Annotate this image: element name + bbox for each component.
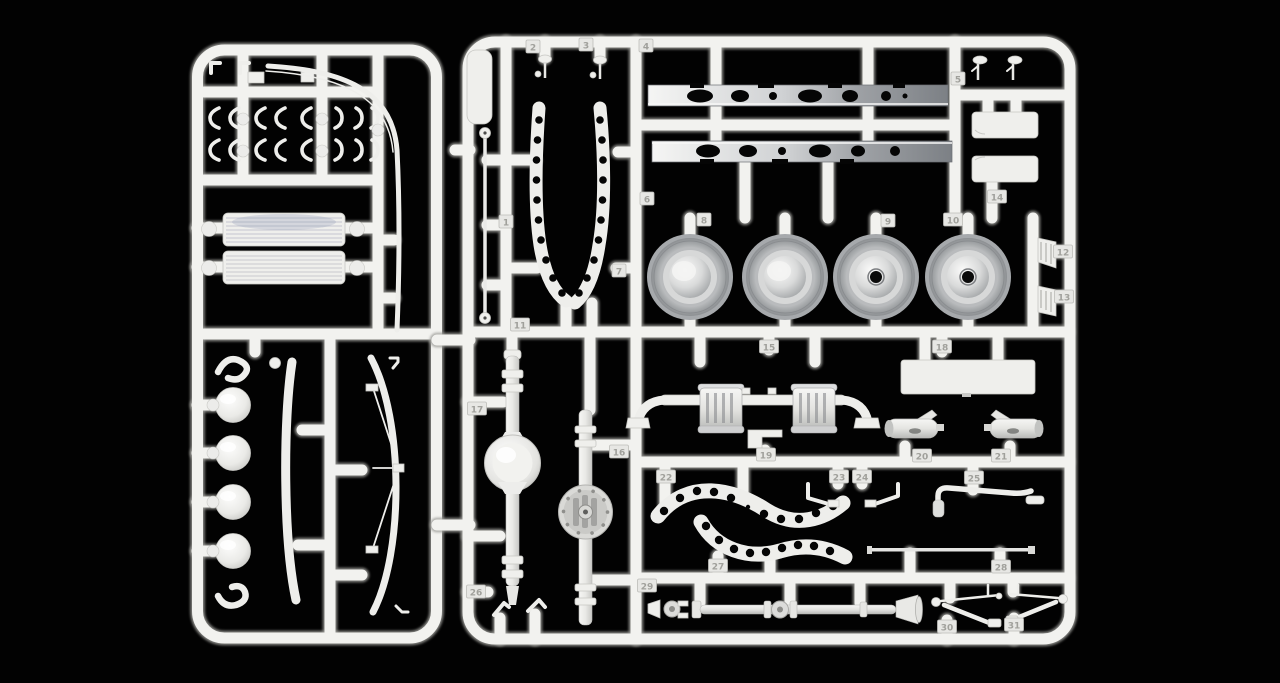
svg-text:21: 21 (995, 453, 1008, 463)
muffler-1 (885, 410, 945, 438)
wheel-dish-4 (925, 234, 1011, 320)
svg-text:30: 30 (941, 624, 954, 634)
small-dot-part (270, 358, 281, 369)
part-number-tag: 2 (526, 40, 540, 54)
brake-drum (698, 384, 744, 433)
part-number-tag: 26 (467, 585, 486, 599)
part-number-tag: 8 (697, 213, 711, 227)
part-number-tag: 18 (933, 340, 952, 354)
top-hook-parts (211, 63, 314, 83)
part-number-tag: 22 (657, 470, 676, 484)
part-number-tag: 15 (760, 340, 779, 354)
frame-rail-1 (648, 83, 948, 106)
svg-text:7: 7 (616, 268, 622, 278)
svg-text:5: 5 (955, 76, 961, 86)
wheel-dish-3 (833, 234, 919, 320)
tie-rod (867, 546, 1035, 554)
wheel-dish-2 (742, 234, 828, 320)
svg-text:26: 26 (470, 589, 483, 599)
right-sprue (437, 42, 1070, 639)
svg-text:3: 3 (583, 42, 589, 52)
svg-text:11: 11 (514, 322, 527, 332)
part-number-tag: 23 (830, 470, 849, 484)
toolbox-lids (972, 112, 1038, 182)
canvas-bow-braced (366, 358, 408, 612)
part-number-tag: 29 (638, 579, 657, 593)
wheel-dish-1 (647, 234, 733, 320)
part-number-tag: 1 (499, 215, 513, 229)
part-number-tag: 21 (992, 449, 1011, 463)
mirror-parts-right (972, 56, 1022, 80)
svg-text:9: 9 (885, 218, 891, 228)
part-number-tag: 4 (639, 39, 653, 53)
brake-drum (791, 384, 837, 433)
svg-text:20: 20 (916, 453, 929, 463)
svg-text:6: 6 (644, 196, 650, 206)
mudguard-strip-2 (701, 522, 845, 557)
part-number-tag: 27 (709, 559, 728, 573)
svg-text:22: 22 (660, 474, 673, 484)
mirror-parts (535, 55, 607, 79)
part-number-tag: 13 (1055, 290, 1074, 304)
left-sprue (197, 50, 437, 638)
part-number-tag: 6 (640, 192, 654, 206)
mudguard-strip-1 (658, 487, 843, 523)
part-number-tag: 10 (944, 213, 963, 227)
cargo-panel (901, 360, 1035, 397)
dome-caps (207, 388, 251, 569)
svg-text:15: 15 (763, 344, 776, 354)
part-number-tag: 11 (511, 318, 530, 332)
exhaust-pipe (933, 488, 1044, 517)
part-number-tag: 17 (468, 402, 487, 416)
part-number-tag: 7 (612, 264, 626, 278)
muffler-2 (984, 410, 1044, 438)
svg-text:2: 2 (530, 44, 536, 54)
svg-text:14: 14 (991, 194, 1004, 204)
part-number-tag: 12 (1054, 245, 1073, 259)
part-number-tag: 14 (988, 190, 1007, 204)
perforated-strip-right (575, 108, 607, 303)
part-number-tag: 30 (938, 620, 957, 634)
tarpaulin-roll-2 (202, 251, 365, 284)
svg-text:4: 4 (643, 43, 649, 53)
part-number-tag: 20 (913, 449, 932, 463)
part-number-tag: 5 (951, 72, 965, 86)
s-hook-top (218, 359, 247, 379)
part-number-tag: 28 (992, 560, 1011, 574)
svg-text:25: 25 (968, 475, 981, 485)
svg-text:8: 8 (701, 217, 707, 227)
svg-text:24: 24 (856, 474, 869, 484)
svg-text:23: 23 (833, 474, 846, 484)
sprue-scene: 1234567891011121314151617181920212223242… (0, 0, 1280, 683)
svg-text:18: 18 (936, 344, 949, 354)
svg-text:12: 12 (1057, 249, 1070, 259)
sprue-photo: 1234567891011121314151617181920212223242… (0, 0, 1280, 683)
svg-text:13: 13 (1058, 294, 1071, 304)
canvas-bow-plain (286, 362, 296, 600)
part-number-tag: 16 (610, 445, 629, 459)
tarpaulin-roll-1 (202, 213, 365, 246)
lever-bracket-2 (865, 484, 898, 507)
frame-rail-2 (652, 141, 952, 164)
part-number-tag: 19 (757, 448, 776, 462)
part-number-tag: 9 (881, 214, 895, 228)
front-axle-with-drums (626, 384, 880, 433)
part-number-tag: 24 (853, 470, 872, 484)
part-number-tag: 25 (965, 471, 984, 485)
svg-text:16: 16 (613, 449, 626, 459)
part-number-tag: 31 (1005, 618, 1024, 632)
blade-panel (467, 50, 492, 124)
svg-text:28: 28 (995, 564, 1008, 574)
svg-text:29: 29 (641, 583, 654, 593)
svg-text:17: 17 (471, 406, 484, 416)
svg-text:31: 31 (1008, 622, 1021, 632)
svg-text:19: 19 (760, 452, 773, 462)
part-number-tag: 3 (579, 38, 593, 52)
svg-text:10: 10 (947, 217, 960, 227)
svg-text:27: 27 (712, 563, 725, 573)
s-hook-bottom (218, 586, 246, 605)
svg-text:1: 1 (503, 219, 509, 229)
axle-housing-plain (485, 350, 541, 605)
